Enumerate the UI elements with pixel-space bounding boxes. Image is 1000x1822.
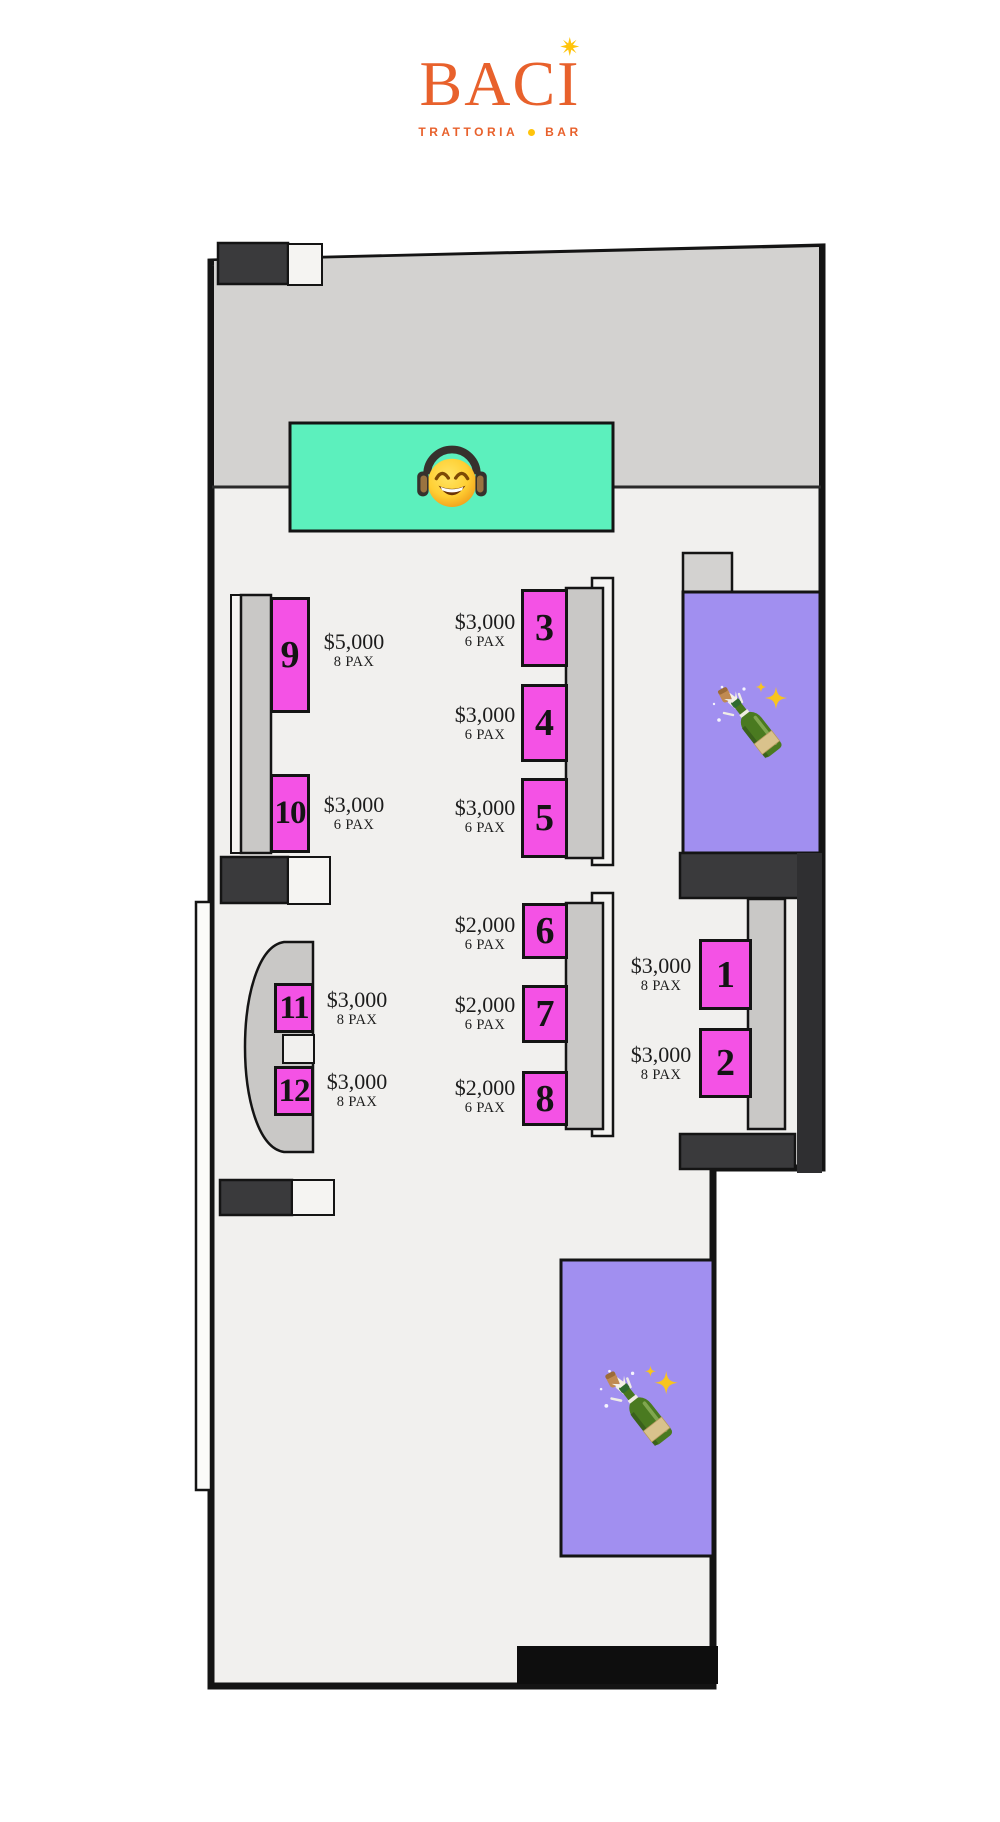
- table-9-price-label: $5,0008 PAX: [299, 630, 409, 670]
- entrance-block-left-lower: [220, 1180, 292, 1215]
- table-7-number: 7: [536, 995, 555, 1033]
- floorplan: [0, 0, 1000, 1822]
- doorway-left-mid: [288, 857, 330, 904]
- table-6[interactable]: 6: [522, 903, 568, 959]
- table-12-price-label: $3,0008 PAX: [307, 1070, 407, 1110]
- entrance-block-left-mid: [221, 857, 288, 903]
- bench-9-10: [241, 595, 271, 853]
- table-12[interactable]: 12: [274, 1066, 314, 1116]
- wall-trim-9-10: [231, 595, 241, 853]
- doorway-left-lower: [292, 1180, 334, 1215]
- table-11[interactable]: 11: [274, 983, 314, 1033]
- bottom-bar-counter: [517, 1646, 718, 1684]
- table-5[interactable]: 5: [521, 778, 568, 858]
- table-9-number: 9: [281, 636, 300, 674]
- doorway-top-left: [288, 244, 322, 285]
- entrance-block-top-left: [218, 243, 288, 284]
- table-4[interactable]: 4: [521, 684, 568, 762]
- table-10-price-label: $3,0006 PAX: [299, 793, 409, 833]
- table-12-number: 12: [279, 1075, 310, 1108]
- bench-3-5: [566, 588, 603, 858]
- bench-11-12-notch: [283, 1035, 314, 1063]
- table-9[interactable]: 9: [270, 597, 310, 713]
- table-1[interactable]: 1: [699, 939, 752, 1010]
- table-3-number: 3: [535, 609, 554, 647]
- table-5-number: 5: [535, 799, 554, 837]
- table-2[interactable]: 2: [699, 1028, 752, 1098]
- seating-map-page: BACI TRATTORIABAR: [0, 0, 1000, 1822]
- table-11-price-label: $3,0008 PAX: [307, 988, 407, 1028]
- table-6-number: 6: [536, 912, 555, 950]
- table-4-number: 4: [535, 704, 554, 742]
- step-block: [683, 553, 732, 593]
- left-corridor: [196, 902, 211, 1490]
- table-2-number: 2: [716, 1044, 735, 1082]
- bench-1-2: [748, 899, 785, 1129]
- wall-block-right-lower: [680, 1134, 795, 1169]
- table-10[interactable]: 10: [270, 774, 310, 853]
- table-11-number: 11: [279, 992, 308, 1025]
- table-8-number: 8: [536, 1080, 555, 1118]
- table-10-number: 10: [275, 797, 306, 830]
- table-1-number: 1: [716, 956, 735, 994]
- bench-6-8: [566, 903, 603, 1129]
- table-8[interactable]: 8: [522, 1071, 568, 1126]
- right-wall-thick: [797, 853, 822, 1173]
- table-3[interactable]: 3: [521, 589, 568, 667]
- table-7[interactable]: 7: [522, 985, 568, 1043]
